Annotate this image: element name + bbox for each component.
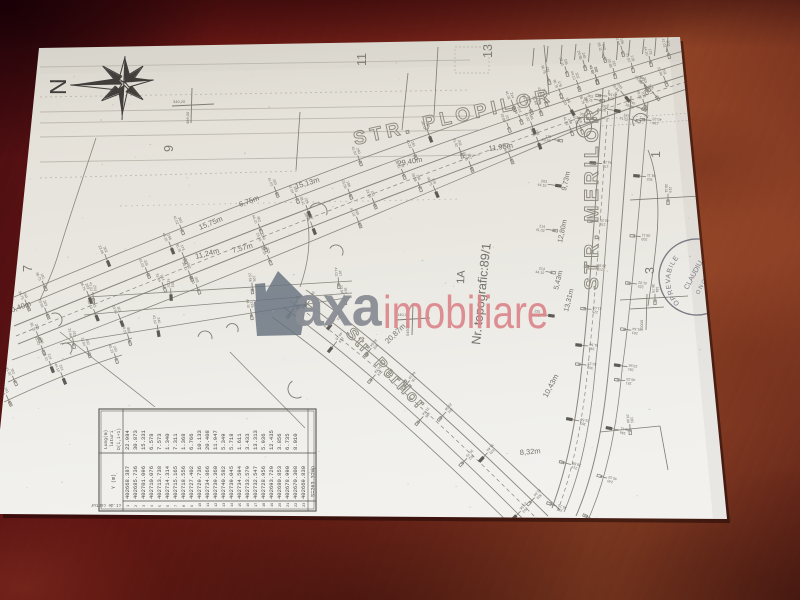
svg-text:40.23: 40.23 [689,44,695,54]
svg-text:402678.990: 402678.990 [284,466,291,499]
svg-text:36.75: 36.75 [651,284,655,293]
svg-text:Lung(m): Lung(m) [103,430,109,449]
svg-text:1.611: 1.611 [236,433,243,450]
svg-text:402685.736: 402685.736 [132,466,139,499]
svg-text:6.766: 6.766 [188,433,195,450]
svg-text:8: 8 [183,505,187,507]
svg-text:5.349: 5.349 [220,433,227,450]
svg-text:3: 3 [143,505,147,507]
svg-text:36.75: 36.75 [692,44,698,54]
svg-text:Y (m): Y (m) [111,474,117,489]
svg-text:23: 23 [303,503,307,507]
svg-text:40.23: 40.23 [652,117,661,122]
svg-text:20.408: 20.408 [204,430,211,450]
svg-text:11: 11 [355,53,369,66]
svg-text:9: 9 [191,505,195,507]
svg-text:3.856: 3.856 [276,433,283,450]
svg-text:402715.165: 402715.165 [172,466,179,499]
svg-text:22: 22 [295,503,299,507]
svg-text:402670.308: 402670.308 [292,466,299,499]
svg-text:10: 10 [199,503,203,507]
svg-text:3: 3 [643,267,657,274]
svg-text:38.11: 38.11 [642,233,651,238]
svg-text:402669.830: 402669.830 [300,466,307,499]
svg-text:7.573: 7.573 [156,433,163,450]
svg-text:402740.582: 402740.582 [220,466,227,499]
svg-text:14: 14 [231,503,235,507]
svg-text:402733.579: 402733.579 [244,466,251,499]
svg-text:D(i,i+1): D(i,i+1) [116,428,122,450]
svg-text:214: 214 [694,46,700,53]
svg-text:402693.729: 402693.729 [268,466,275,499]
svg-text:N: N [45,78,71,95]
svg-text:axa: axa [294,274,383,338]
svg-text:12.435: 12.435 [268,430,275,450]
svg-text:1.368: 1.368 [180,433,187,450]
svg-text:44.10: 44.10 [603,160,612,165]
svg-text:22.984: 22.984 [124,429,131,450]
svg-text:29.88: 29.88 [625,414,629,423]
svg-text:41.02: 41.02 [592,306,601,311]
svg-text:7: 7 [175,505,179,507]
svg-text:11: 11 [207,503,211,507]
svg-text:16: 16 [247,503,251,507]
svg-text:187: 187 [686,62,692,69]
svg-text:13: 13 [481,44,495,58]
svg-text:1: 1 [649,151,663,158]
svg-text:40000: 40000 [639,319,644,331]
svg-text:7: 7 [21,265,35,272]
svg-text:5.936: 5.936 [260,433,267,450]
svg-text:6.735: 6.735 [284,433,291,450]
svg-text:41.02: 41.02 [89,282,93,291]
svg-text:5: 5 [159,505,163,507]
svg-text:17: 17 [255,503,259,507]
svg-text:1A: 1A [455,269,468,284]
svg-text:3.433: 3.433 [244,433,251,450]
svg-text:21: 21 [287,503,291,507]
svg-text:402713.738: 402713.738 [156,466,163,499]
svg-text:7.311: 7.311 [172,433,179,450]
svg-text:S=263.32mp: S=263.32mp [311,466,317,497]
svg-text:1: 1 [127,505,131,507]
svg-text:laturi: laturi [109,430,115,447]
svg-text:11.947: 11.947 [212,430,219,450]
svg-text:15: 15 [239,503,243,507]
svg-text:402680.853: 402680.853 [276,466,283,499]
svg-text:36.75: 36.75 [687,33,693,43]
svg-text:402734.594: 402734.594 [236,465,243,499]
svg-text:23.56: 23.56 [608,92,617,97]
svg-text:402701.096: 402701.096 [140,466,147,499]
svg-text:9: 9 [162,145,176,152]
svg-text:402714.314: 402714.314 [164,465,171,499]
svg-text:2: 2 [135,505,139,507]
svg-text:19: 19 [271,503,275,507]
svg-text:402710.076: 402710.076 [148,466,155,499]
svg-text:402739.360: 402739.360 [212,466,219,499]
svg-text:402727.402: 402727.402 [188,466,195,499]
svg-text:30.873: 30.873 [132,430,139,450]
svg-text:402718.556: 402718.556 [180,466,187,499]
svg-text:18: 18 [263,503,267,507]
svg-text:402734.866: 402734.866 [204,466,211,499]
svg-text:STR. MERILOR: STR. MERILOR [582,106,603,290]
svg-text:6: 6 [167,505,171,507]
svg-text:8.010: 8.010 [292,433,299,450]
svg-text:402668.387: 402668.387 [124,466,131,499]
svg-text:4: 4 [151,505,155,507]
svg-text:340,20: 340,20 [173,99,186,104]
svg-text:6.578: 6.578 [148,433,155,450]
svg-text:402729.736: 402729.736 [196,466,203,499]
svg-text:13: 13 [223,503,227,507]
svg-text:13.313: 13.313 [252,430,259,450]
svg-text:15.331: 15.331 [140,429,147,450]
svg-text:imobiliare: imobiliare [383,287,548,338]
svg-text:302: 302 [697,46,702,53]
svg-text:20: 20 [279,503,283,507]
svg-text:38.11: 38.11 [664,184,668,193]
svg-text:10.133: 10.133 [196,430,203,450]
svg-text:386,00: 386,00 [185,111,190,124]
svg-text:12: 12 [215,503,219,507]
svg-text:41.02: 41.02 [166,279,170,288]
svg-text:23.56: 23.56 [248,273,252,282]
svg-text:402728.956: 402728.956 [260,466,267,499]
svg-text:5.718: 5.718 [228,433,235,450]
svg-text:302: 302 [683,36,688,43]
svg-text:1.340: 1.340 [164,433,171,450]
svg-text:402739.045: 402739.045 [228,466,235,499]
svg-text:219: 219 [692,35,697,42]
svg-text:402732.547: 402732.547 [252,466,259,499]
svg-text:8,32m: 8,32m [519,446,541,457]
svg-text:302: 302 [687,75,693,82]
svg-text:ct.de contur: ct.de contur [90,502,121,507]
